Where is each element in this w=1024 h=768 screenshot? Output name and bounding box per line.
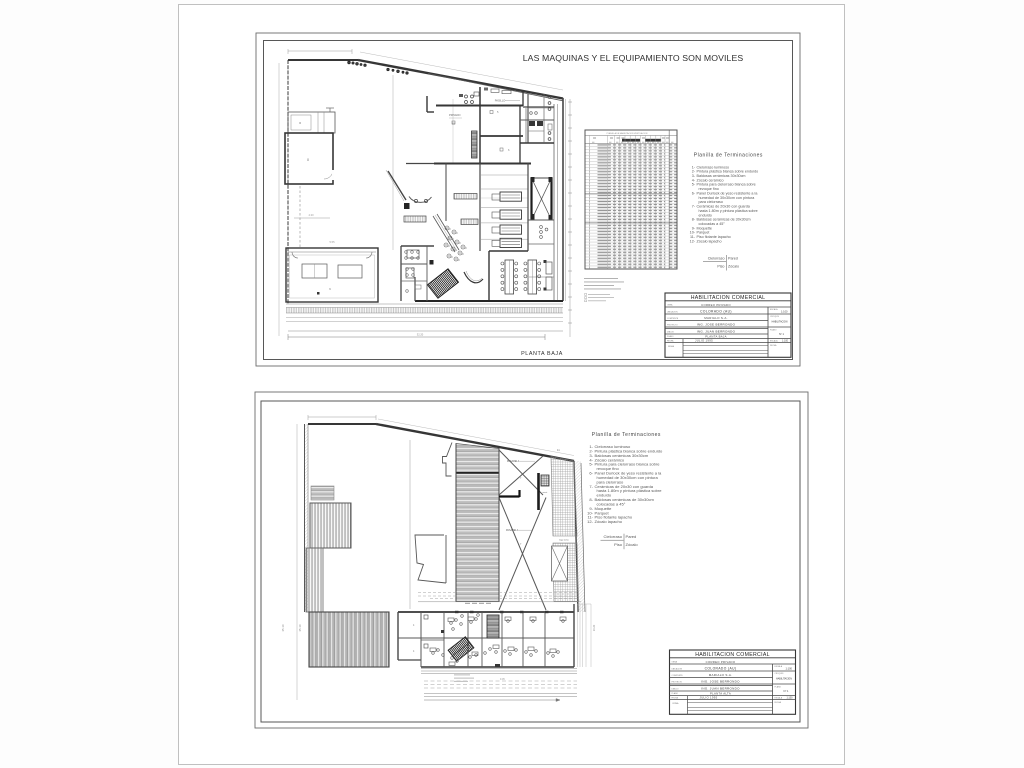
svg-text:Zócalo: Zócalo xyxy=(626,542,639,547)
svg-text:PLANO: PLANO xyxy=(770,329,777,332)
svg-text:CORREO PRIVADO: CORREO PRIVADO xyxy=(706,660,736,664)
svg-text:Pared: Pared xyxy=(626,534,637,539)
svg-text:DIBUJO: DIBUJO xyxy=(667,332,674,334)
svg-text:FECHA: FECHA xyxy=(672,697,679,700)
svg-text:PLANTA BAJA: PLANTA BAJA xyxy=(521,351,563,357)
svg-text:41: 41 xyxy=(557,449,560,452)
svg-text:MARIALO S.A.: MARIALO S.A. xyxy=(704,316,728,320)
svg-text:FIRMA: FIRMA xyxy=(673,702,680,705)
svg-text:Piso: Piso xyxy=(717,265,724,269)
svg-text:1:100: 1:100 xyxy=(781,310,788,314)
svg-text:mont.: mont. xyxy=(542,491,547,494)
svg-text:Cielorraso: Cielorraso xyxy=(604,534,623,539)
svg-text:JULIO 1995: JULIO 1995 xyxy=(700,696,718,700)
svg-text:DIBUJO: DIBUJO xyxy=(672,689,679,691)
svg-text:HABILITACION COMERCIAL: HABILITACION COMERCIAL xyxy=(695,652,770,658)
svg-text:35.10: 35.10 xyxy=(298,624,302,631)
svg-text:5-: 5- xyxy=(589,462,593,467)
svg-text:COLORADO (AU): COLORADO (AU) xyxy=(700,310,732,314)
svg-text:LAS MAQUINAS Y EL EQUIPAMIENTO: LAS MAQUINAS Y EL EQUIPAMIENTO SON MOVIL… xyxy=(523,53,744,63)
svg-text:FIRMA: FIRMA xyxy=(668,345,675,348)
svg-text:ING. JOSE BERRONDO: ING. JOSE BERRONDO xyxy=(697,323,736,327)
svg-text:Nº 1: Nº 1 xyxy=(784,689,790,693)
svg-text:UBICACION: UBICACION xyxy=(667,311,678,314)
svg-text:12-: 12- xyxy=(587,519,594,524)
svg-text:Planilla de Terminaciones: Planilla de Terminaciones xyxy=(592,432,661,438)
svg-text:9.05: 9.05 xyxy=(500,678,505,681)
svg-text:FECHA: FECHA xyxy=(770,344,777,347)
svg-text:PRIVADO: PRIVADO xyxy=(449,113,460,117)
svg-text:FECHA: FECHA xyxy=(775,701,782,704)
svg-text:CORREO PRIVADO: CORREO PRIVADO xyxy=(701,303,731,307)
svg-text:COMITENTE: COMITENTE xyxy=(667,318,679,320)
svg-text:Zócalo: Zócalo xyxy=(728,265,739,269)
svg-text:9: 9 xyxy=(329,287,331,291)
svg-text:OBRA: OBRA xyxy=(667,304,673,307)
svg-text:7-: 7- xyxy=(589,484,593,489)
svg-text:PROYECTO: PROYECTO xyxy=(667,325,678,327)
svg-text:8-: 8- xyxy=(589,497,593,502)
svg-text:PLANO: PLANO xyxy=(667,335,674,338)
svg-text:PLANO: PLANO xyxy=(775,686,782,689)
svg-text:baja techo: baja techo xyxy=(559,539,569,542)
svg-text:PASARELA: PASARELA xyxy=(506,529,519,532)
svg-text:UBICACION: UBICACION xyxy=(672,668,683,671)
svg-text:32.20: 32.20 xyxy=(417,333,424,337)
svg-text:8-: 8- xyxy=(692,218,696,222)
svg-text:12-: 12- xyxy=(690,239,696,243)
svg-text:ING. JOSE BERRONDO: ING. JOSE BERRONDO xyxy=(701,680,740,684)
svg-text:ESCALA: ESCALA xyxy=(775,696,783,699)
svg-text:Zócalo lapacho: Zócalo lapacho xyxy=(595,519,623,524)
svg-text:Piso: Piso xyxy=(614,542,623,547)
svg-text:PLANO: PLANO xyxy=(672,692,679,695)
svg-text:7-: 7- xyxy=(692,205,696,209)
svg-text:ESCALA: ESCALA xyxy=(770,339,778,342)
svg-text:10.20: 10.20 xyxy=(592,624,596,631)
svg-text:8: 8 xyxy=(307,158,309,162)
svg-text:ESCALA: ESCALA xyxy=(770,308,778,311)
svg-text:HABILITACION: HABILITACION xyxy=(776,678,792,681)
svg-text:5-: 5- xyxy=(692,183,696,187)
svg-text:ING. JUAN BERRONDO: ING. JUAN BERRONDO xyxy=(701,687,740,691)
svg-text:Pared: Pared xyxy=(728,257,738,261)
svg-text:MARIALO S.A.: MARIALO S.A. xyxy=(709,673,733,677)
svg-text:4.30: 4.30 xyxy=(308,213,314,217)
svg-text:35.10: 35.10 xyxy=(281,624,285,631)
svg-text:CROQUIS: CROQUIS xyxy=(770,316,780,318)
svg-text:ING. JUAN BERRONDO: ING. JUAN BERRONDO xyxy=(697,330,736,334)
svg-text:PROYECTO: PROYECTO xyxy=(672,682,683,684)
svg-text:1:100: 1:100 xyxy=(786,667,793,671)
svg-text:6-: 6- xyxy=(692,191,696,195)
svg-text:JULIO 1995: JULIO 1995 xyxy=(695,339,713,343)
svg-text:FECHA: FECHA xyxy=(667,340,674,343)
svg-text:OBRA: OBRA xyxy=(672,661,678,664)
svg-text:4: 4 xyxy=(413,650,415,653)
svg-text:HABILITACION: HABILITACION xyxy=(772,321,788,324)
svg-text:Zócalo lapacho: Zócalo lapacho xyxy=(697,239,722,243)
svg-text:PASARELA: PASARELA xyxy=(507,460,520,463)
svg-text:7: 7 xyxy=(520,477,522,480)
svg-text:CROQUIS: CROQUIS xyxy=(775,673,785,675)
svg-text:PASILLO: PASILLO xyxy=(495,99,506,103)
svg-text:III: III xyxy=(299,121,302,125)
svg-text:HABILITACION COMERCIAL: HABILITACION COMERCIAL xyxy=(691,295,766,301)
svg-text:6-: 6- xyxy=(589,471,593,476)
svg-text:7: 7 xyxy=(520,543,522,546)
svg-text:1:100: 1:100 xyxy=(787,697,794,700)
svg-text:COLORADO (AU): COLORADO (AU) xyxy=(705,667,737,671)
svg-text:Nº 1: Nº 1 xyxy=(779,332,785,336)
svg-text:ESCALA: ESCALA xyxy=(775,665,783,668)
svg-text:PLANILLA DE HABILITACION VENTI: PLANILLA DE HABILITACION VENTILACION xyxy=(607,132,648,135)
svg-text:6: 6 xyxy=(508,148,510,152)
svg-text:4: 4 xyxy=(413,624,415,627)
svg-text:Cielorraso: Cielorraso xyxy=(708,257,725,261)
svg-text:5: 5 xyxy=(497,110,499,114)
svg-text:COMITENTE: COMITENTE xyxy=(672,675,684,677)
svg-text:5.55: 5.55 xyxy=(329,240,335,244)
svg-text:Planilla de Terminaciones: Planilla de Terminaciones xyxy=(694,152,763,158)
svg-text:1:100: 1:100 xyxy=(782,340,789,343)
